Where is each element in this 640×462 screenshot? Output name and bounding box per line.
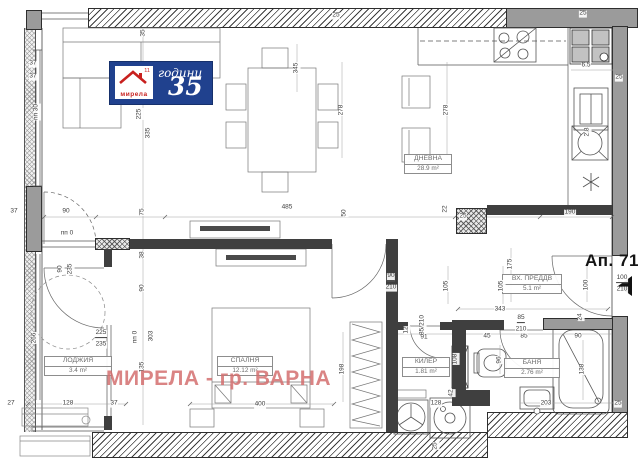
dimension-label: 343	[494, 307, 506, 314]
dimension-label: 45	[483, 334, 491, 341]
dimension-label: 198	[340, 363, 347, 375]
dimension-label: 37	[29, 61, 37, 68]
dimension-label: 235	[68, 263, 75, 275]
dimension-label: 90	[574, 334, 582, 341]
dimension-label: 25	[615, 75, 623, 82]
dimension-label: 85	[520, 334, 528, 341]
dimension-label: 37	[10, 209, 18, 216]
logo-number-35: 35	[168, 74, 203, 99]
dimension-label: 90	[387, 273, 395, 281]
dimension-label: 105	[444, 280, 451, 292]
dimension-label: 190	[564, 210, 576, 217]
dimension-label: 12	[404, 326, 411, 334]
dimension-label: 90	[62, 209, 70, 216]
logo-mark: 11	[144, 68, 150, 74]
dimension-label: 75	[140, 208, 147, 216]
dimension-label: пп 30	[34, 103, 41, 120]
dimension-label: 100	[584, 279, 591, 291]
dimension-label: пп 0	[133, 330, 140, 343]
dimension-label: 25	[433, 442, 440, 450]
floor-plan-canvas: ДНЕВНА 28.9 m² СПАЛНЯ 12.12 m² ЛОДЖИЯ 3.…	[0, 0, 640, 462]
dimension-label: 345	[294, 62, 301, 74]
dimension-label: 42	[449, 389, 456, 397]
dimension-label: 91	[420, 335, 428, 342]
dimension-label: 90	[140, 284, 147, 292]
dimension-label: 225	[95, 330, 107, 338]
dimension-label: 400	[254, 402, 266, 409]
dimension-label: пп 0	[60, 231, 73, 238]
dimension-label: 100	[616, 275, 628, 283]
dimension-label: 203	[540, 401, 552, 408]
watermark-text: МИРЕЛА - гр. ВАРНА	[106, 367, 331, 391]
dimension-label: 210	[616, 287, 628, 294]
dimension-label: 90	[58, 265, 65, 273]
dimension-label: 37	[110, 401, 118, 408]
dimension-label: 210	[515, 327, 527, 334]
logo-brand: мирела	[115, 91, 153, 98]
dimension-label: 303	[149, 330, 156, 342]
dimension-label: 235	[95, 342, 107, 349]
dimension-label: 6.5	[581, 63, 591, 70]
dimension-label: 50	[342, 209, 349, 217]
dimension-label: 22	[443, 205, 450, 213]
logo-house-box: 11 мирела	[115, 66, 153, 99]
dimension-label: 225	[137, 108, 144, 120]
agency-logo: 11 мирела години 35	[110, 62, 212, 104]
dimension-label: 24	[578, 313, 585, 321]
dimensions-layer: 37904852225190503737пп 30225335753534525…	[0, 0, 640, 462]
dimension-label: 96	[497, 356, 504, 364]
dimension-label: 128	[430, 401, 442, 408]
dimension-label: 278	[444, 104, 451, 116]
dimension-label: 25	[332, 13, 340, 20]
dimension-label: 25	[614, 401, 622, 408]
dimension-label: 108	[453, 353, 460, 365]
dimension-label: 175	[508, 258, 515, 270]
dimension-label: 37	[29, 74, 37, 81]
dimension-label: 85/210	[420, 315, 427, 336]
dimension-label: 105	[499, 280, 506, 292]
dimension-label: 210	[385, 285, 397, 292]
dimension-label: 35	[141, 29, 148, 37]
apartment-number: Ап. 71	[585, 251, 639, 271]
dimension-label: 25	[579, 11, 587, 18]
dimension-label: 85	[517, 315, 525, 323]
dimension-label: 266	[32, 332, 39, 344]
dimension-label: 138	[580, 363, 587, 375]
dimension-label: 25	[459, 214, 467, 221]
dimension-label: 2.8	[585, 127, 592, 137]
dimension-label: 485	[281, 205, 293, 212]
dimension-label: 128	[62, 401, 74, 408]
dimension-label: 335	[146, 127, 153, 139]
dimension-label: 38	[140, 251, 147, 259]
dimension-label: 27	[7, 401, 15, 408]
dimension-label: 278	[339, 104, 346, 116]
